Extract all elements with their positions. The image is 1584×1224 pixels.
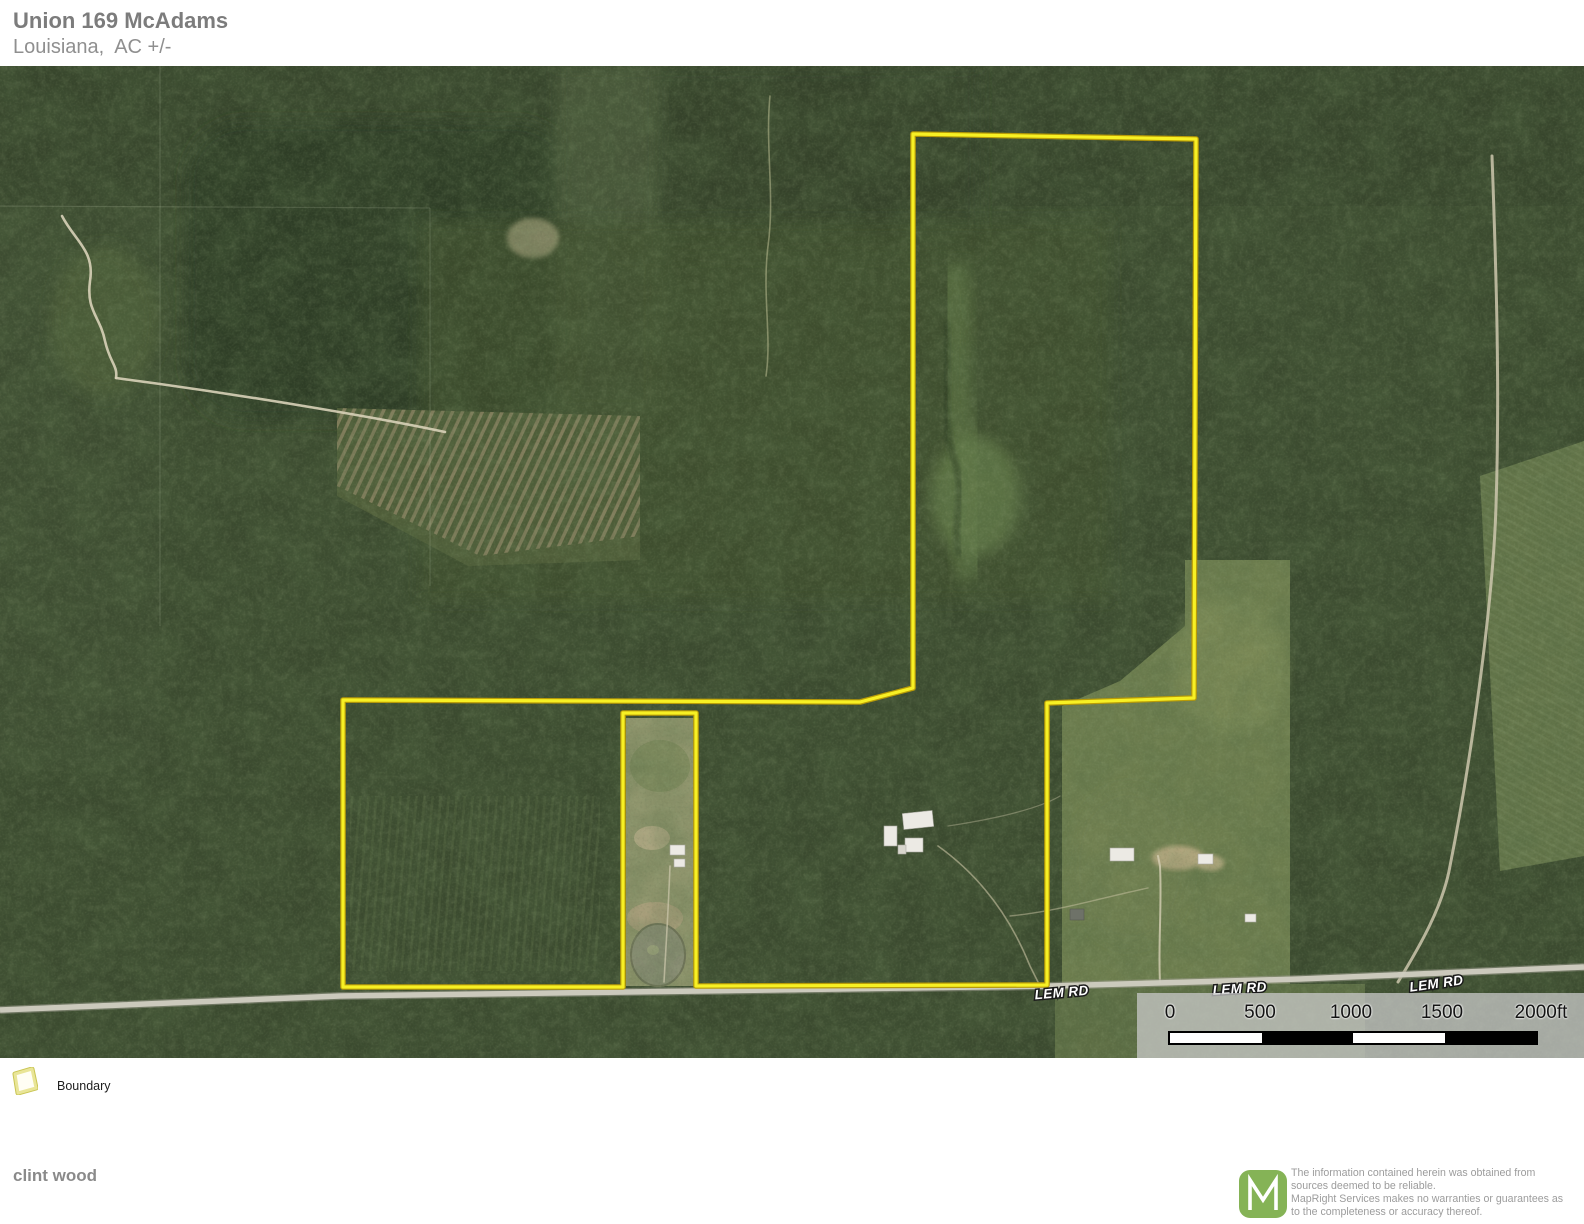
map-export-page: Union 169 McAdams Louisiana, AC +/-	[0, 0, 1584, 1224]
mapright-logo	[1239, 1170, 1287, 1218]
disclaimer-text: The information contained herein was obt…	[1291, 1167, 1573, 1219]
scale-bar-segments	[1168, 1031, 1538, 1045]
scale-tick: 1000	[1330, 1002, 1372, 1024]
map-title: Union 169 McAdams	[13, 8, 228, 34]
boundary-swatch-icon	[12, 1067, 38, 1095]
scale-tick: 1500	[1421, 1002, 1463, 1024]
author-name: clint wood	[13, 1166, 97, 1186]
scale-bar: 0 500 1000 1500 2000ft	[1137, 993, 1584, 1058]
scale-tick: 0	[1165, 1002, 1176, 1024]
map-canvas: LEM RD LEM RD LEM RD	[0, 66, 1584, 1058]
legend: Boundary	[0, 1058, 1584, 1118]
forest-texture	[0, 66, 1584, 1058]
logo-letter-m	[1239, 1170, 1287, 1218]
satellite-map: LEM RD LEM RD LEM RD	[0, 66, 1584, 1058]
map-subtitle: Louisiana, AC +/-	[13, 36, 171, 59]
scale-tick: 2000ft	[1515, 1002, 1568, 1024]
scale-tick: 500	[1244, 1002, 1276, 1024]
legend-label: Boundary	[57, 1079, 111, 1093]
